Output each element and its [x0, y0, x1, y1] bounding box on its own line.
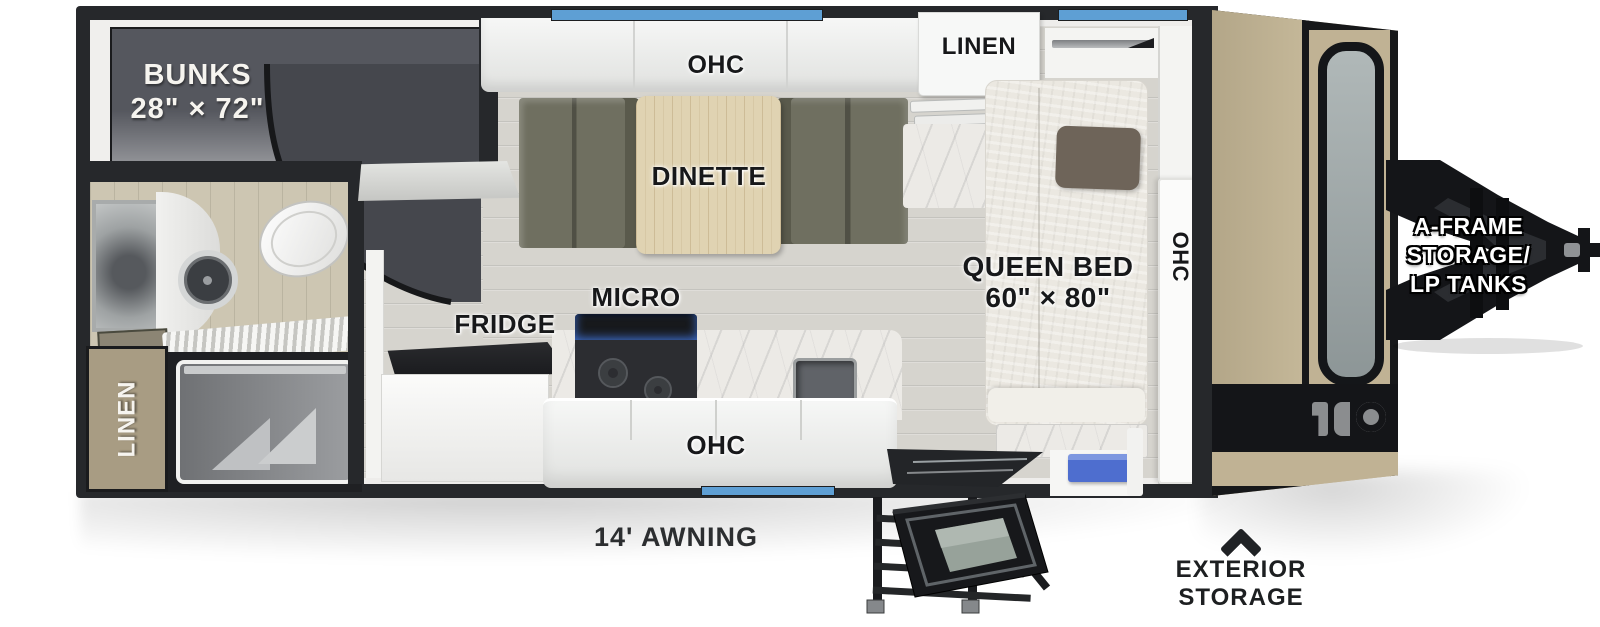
- entry-step-tray: [1068, 454, 1130, 482]
- queen-bed-label: QUEEN BED 60" × 80": [958, 251, 1138, 313]
- wardrobe-shelf: [184, 366, 346, 374]
- bed-pillow: [1055, 126, 1141, 191]
- cabinet-divider-1: [630, 400, 632, 440]
- bathroom-mirror: [92, 200, 160, 332]
- brand-graphic-3: [1356, 402, 1386, 432]
- aframe-label-line2: STORAGE/: [1366, 241, 1571, 270]
- dinette-bench-right: [777, 98, 908, 244]
- fridge-body: [381, 374, 549, 482]
- window-top-right: [1058, 9, 1188, 21]
- floorplan-canvas: LINEN OHC: [0, 0, 1600, 627]
- linen-top-label: LINEN: [918, 34, 1040, 60]
- queen-bed-label-line2: 60" × 80": [958, 282, 1138, 313]
- bunks-label-line2: 28" × 72": [105, 92, 290, 126]
- range-cooktop: [575, 314, 697, 342]
- bunks-label-line1: BUNKS: [105, 58, 290, 92]
- aframe-label-line3: LP TANKS: [1366, 270, 1571, 299]
- queen-bed-label-line1: QUEEN BED: [958, 251, 1138, 282]
- bathroom-sink-drain: [203, 276, 212, 285]
- micro-label: MICRO: [576, 283, 696, 311]
- ohc-divider-1: [633, 20, 635, 90]
- dinette-label: DINETTE: [643, 162, 775, 190]
- aframe-label-line1: A-FRAME: [1366, 212, 1571, 241]
- dinette-bench-left: [519, 98, 639, 248]
- front-ohc-label: OHC: [1168, 232, 1192, 282]
- brand-graphic-2: [1334, 402, 1350, 436]
- fridge-label: FRIDGE: [440, 310, 570, 338]
- bathroom-right-wall: [348, 182, 364, 484]
- window-bottom: [701, 486, 835, 496]
- door-mat: [887, 449, 1043, 487]
- entry-steps-door: [855, 430, 1055, 622]
- cabinet-divider-3: [800, 400, 802, 440]
- bedroom-vent-cabinet: [1045, 28, 1158, 78]
- exterior-storage-label: EXTERIOR STORAGE: [1150, 556, 1332, 612]
- ohc-bottom-label: OHC: [656, 431, 776, 459]
- aframe-label: A-FRAME STORAGE/ LP TANKS: [1366, 212, 1571, 299]
- exterior-storage-line2: STORAGE: [1150, 584, 1332, 612]
- awning-label: 14' AWNING: [576, 522, 776, 553]
- linen-closet-label: LINEN: [113, 381, 141, 458]
- range-burner-1: [598, 358, 628, 388]
- ohc-top-label: OHC: [656, 52, 776, 79]
- ohc-divider-2: [786, 20, 788, 90]
- bunks-label: BUNKS 28" × 72": [105, 58, 290, 126]
- exterior-storage-line1: EXTERIOR: [1150, 556, 1332, 584]
- linen-closet-label-wrap: LINEN: [86, 360, 168, 478]
- door-post: [1127, 428, 1143, 496]
- window-top-left: [551, 9, 823, 21]
- bed-foot-blanket: [988, 388, 1145, 422]
- counter-wedge: [358, 161, 520, 201]
- bunk-bottom-wall: [76, 161, 362, 182]
